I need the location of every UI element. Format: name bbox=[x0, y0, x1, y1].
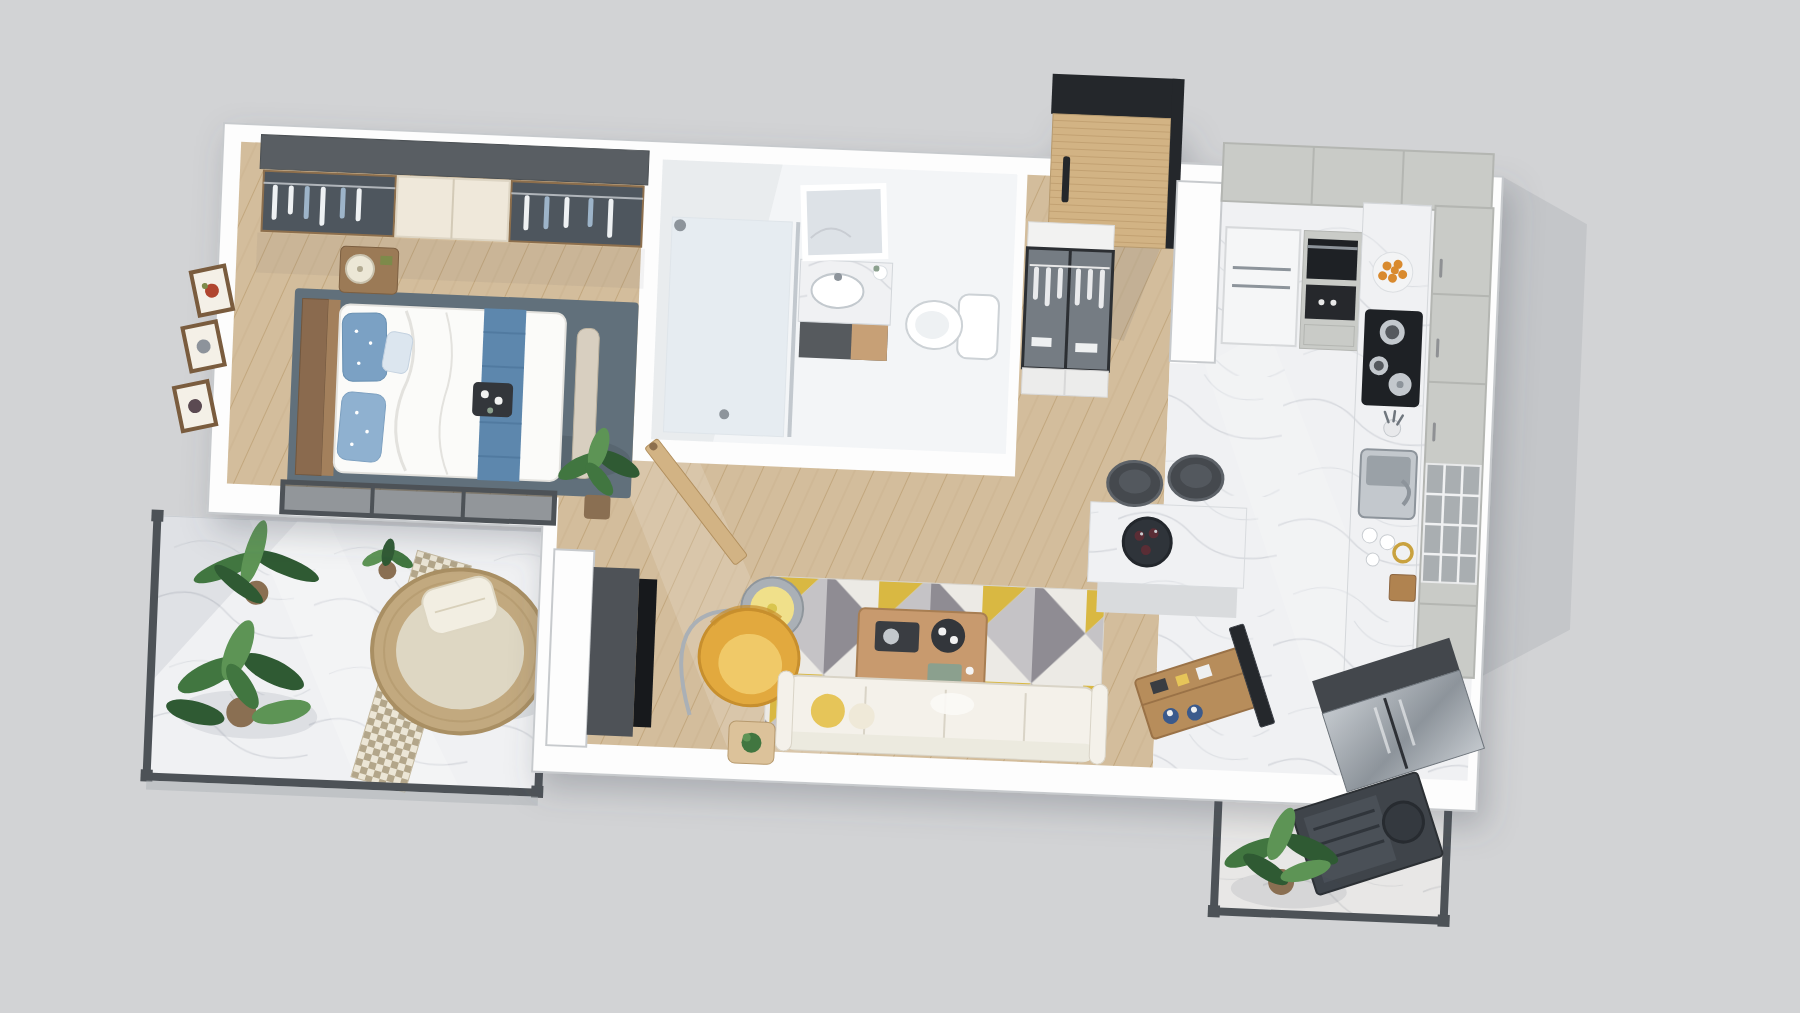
armrest bbox=[775, 671, 794, 752]
cup bbox=[1366, 553, 1380, 567]
bed bbox=[295, 299, 566, 486]
refrigerator bbox=[1222, 227, 1301, 346]
kitchen-wall-stub bbox=[1170, 181, 1222, 363]
oven-tower bbox=[1299, 230, 1362, 350]
oven bbox=[1306, 239, 1358, 281]
glass-cabinet bbox=[1422, 464, 1481, 584]
railing-post bbox=[151, 509, 163, 521]
tv-cabinet bbox=[587, 567, 640, 737]
cup bbox=[1362, 528, 1378, 544]
nightstand-lamp bbox=[339, 246, 399, 294]
railing-post bbox=[1208, 905, 1220, 917]
railing-post bbox=[1437, 915, 1449, 927]
balcony-left bbox=[140, 509, 571, 806]
kitchen-island bbox=[1086, 502, 1246, 618]
side-table bbox=[728, 721, 776, 765]
tv-wall bbox=[546, 549, 658, 749]
railing-post bbox=[531, 786, 543, 798]
vanity-mirror bbox=[803, 186, 885, 258]
wine-recess bbox=[1122, 517, 1172, 567]
entrance-door bbox=[1046, 74, 1185, 249]
wardrobe bbox=[257, 135, 649, 247]
vanity-cabinet-wood bbox=[851, 324, 888, 361]
upper-cabinets bbox=[1222, 143, 1494, 212]
cup bbox=[1380, 534, 1396, 550]
book bbox=[380, 256, 392, 265]
wood-box bbox=[1389, 574, 1416, 601]
floorplan-render bbox=[0, 0, 1800, 1013]
hall-wardrobe bbox=[1021, 222, 1114, 397]
folded-clothes bbox=[1031, 337, 1051, 347]
shower bbox=[663, 217, 792, 437]
railing-post bbox=[140, 769, 152, 781]
folded-clothes bbox=[1075, 343, 1097, 353]
door-header bbox=[1051, 74, 1181, 119]
armrest bbox=[1089, 684, 1108, 765]
vanity bbox=[796, 183, 896, 361]
floorplan-stage bbox=[0, 0, 1800, 1013]
